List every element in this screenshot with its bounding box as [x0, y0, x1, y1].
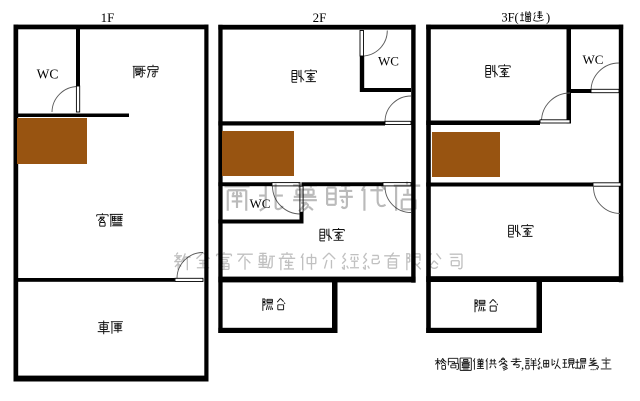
- svg-text:): ): [546, 11, 550, 25]
- svg-text:1F: 1F: [101, 10, 115, 25]
- svg-text:WC: WC: [37, 67, 59, 82]
- svg-text:2F: 2F: [313, 10, 327, 25]
- svg-text:3F(: 3F(: [501, 11, 518, 25]
- svg-text:,: ,: [521, 357, 524, 372]
- svg-text:WC: WC: [378, 54, 399, 69]
- svg-text:WC: WC: [583, 52, 604, 67]
- svg-text:WC: WC: [250, 196, 271, 211]
